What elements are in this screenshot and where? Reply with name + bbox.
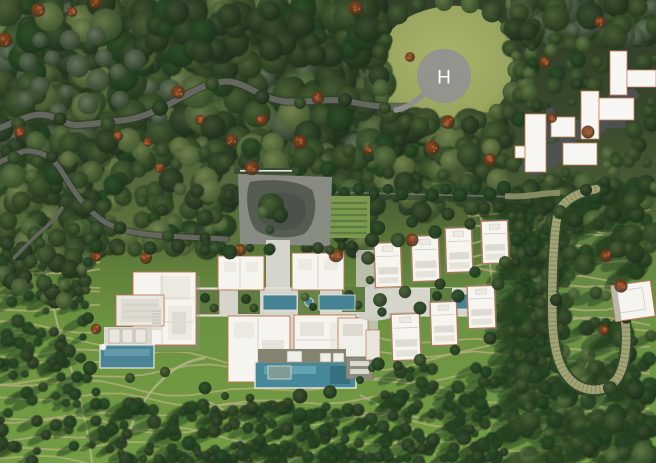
svg-text:H: H: [437, 68, 451, 89]
